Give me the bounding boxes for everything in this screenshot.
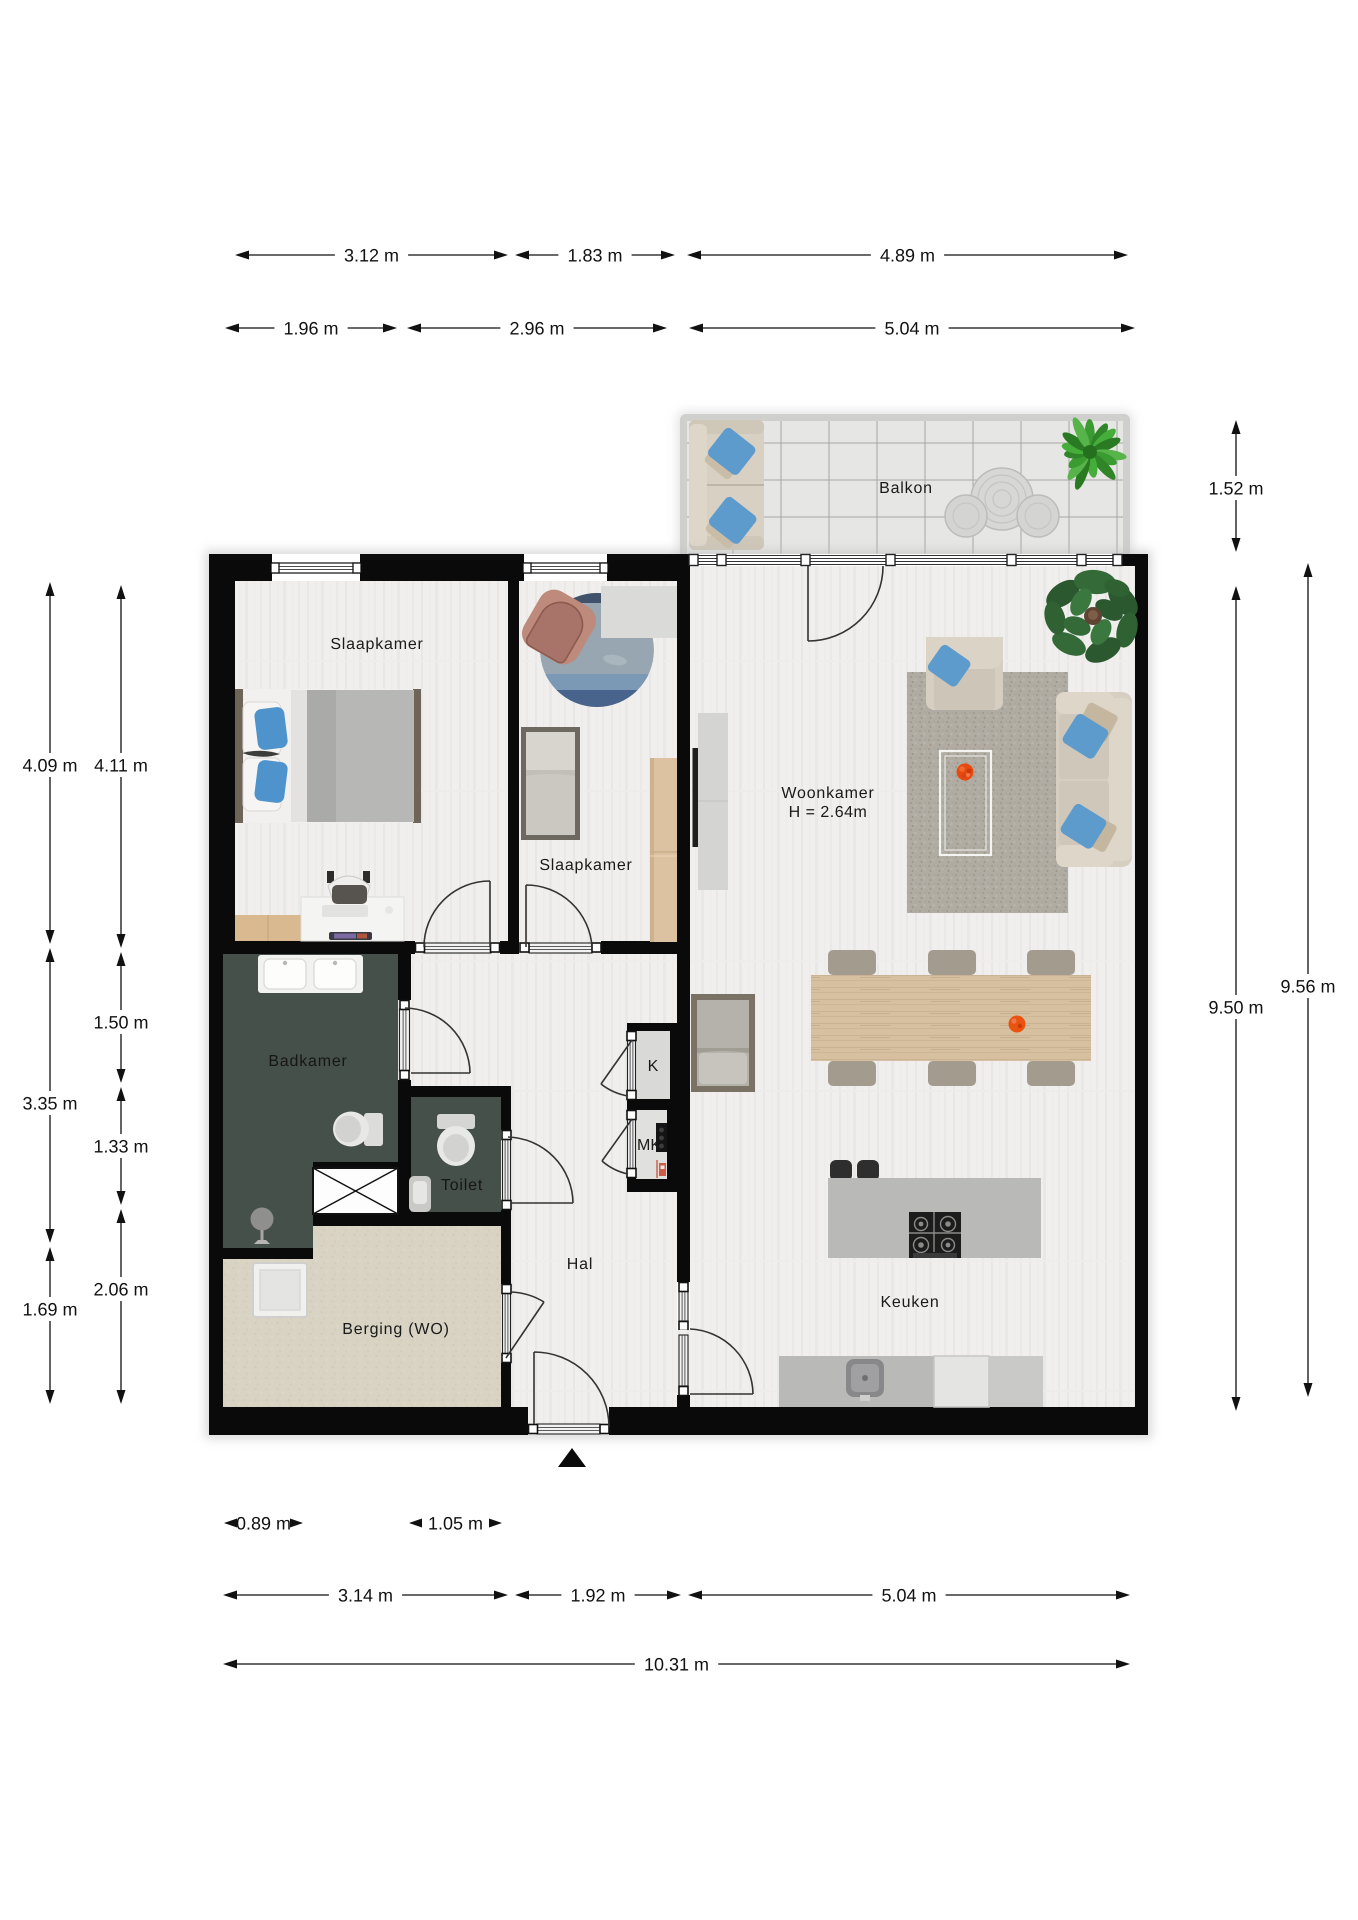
- svg-text:1.33 m: 1.33 m: [93, 1137, 148, 1157]
- svg-text:Slaapkamer: Slaapkamer: [539, 857, 632, 874]
- svg-text:MK: MK: [637, 1137, 661, 1154]
- svg-text:5.04 m: 5.04 m: [881, 1586, 936, 1606]
- svg-text:1.52 m: 1.52 m: [1208, 479, 1263, 499]
- svg-text:9.50 m: 9.50 m: [1208, 998, 1263, 1018]
- svg-text:Hal: Hal: [567, 1256, 593, 1273]
- svg-text:1.92 m: 1.92 m: [570, 1586, 625, 1606]
- svg-text:3.12 m: 3.12 m: [344, 246, 399, 266]
- svg-text:K: K: [648, 1058, 659, 1075]
- svg-text:0.89 m: 0.89 m: [236, 1514, 291, 1534]
- svg-text:1.83 m: 1.83 m: [567, 246, 622, 266]
- svg-text:9.56 m: 9.56 m: [1280, 977, 1335, 997]
- svg-text:Berging (WO): Berging (WO): [342, 1321, 449, 1338]
- svg-text:1.50 m: 1.50 m: [93, 1013, 148, 1033]
- svg-text:Toilet: Toilet: [441, 1177, 483, 1194]
- svg-text:1.05 m: 1.05 m: [428, 1514, 483, 1534]
- svg-text:2.96 m: 2.96 m: [509, 319, 564, 339]
- svg-text:Keuken: Keuken: [880, 1294, 939, 1311]
- svg-text:4.09 m: 4.09 m: [22, 756, 77, 776]
- svg-text:Woonkamer: Woonkamer: [781, 785, 874, 802]
- svg-text:3.14 m: 3.14 m: [338, 1586, 393, 1606]
- svg-text:Balkon: Balkon: [879, 480, 933, 497]
- svg-text:2.06 m: 2.06 m: [93, 1280, 148, 1300]
- svg-text:3.35 m: 3.35 m: [22, 1094, 77, 1114]
- svg-text:Badkamer: Badkamer: [268, 1053, 347, 1070]
- svg-text:1.96 m: 1.96 m: [283, 319, 338, 339]
- svg-text:5.04 m: 5.04 m: [884, 319, 939, 339]
- svg-text:1.69 m: 1.69 m: [22, 1300, 77, 1320]
- svg-text:10.31 m: 10.31 m: [644, 1655, 709, 1675]
- svg-text:Slaapkamer: Slaapkamer: [330, 636, 423, 653]
- svg-text:4.89 m: 4.89 m: [880, 246, 935, 266]
- svg-text:4.11 m: 4.11 m: [94, 756, 148, 776]
- svg-text:H = 2.64m: H = 2.64m: [789, 804, 868, 821]
